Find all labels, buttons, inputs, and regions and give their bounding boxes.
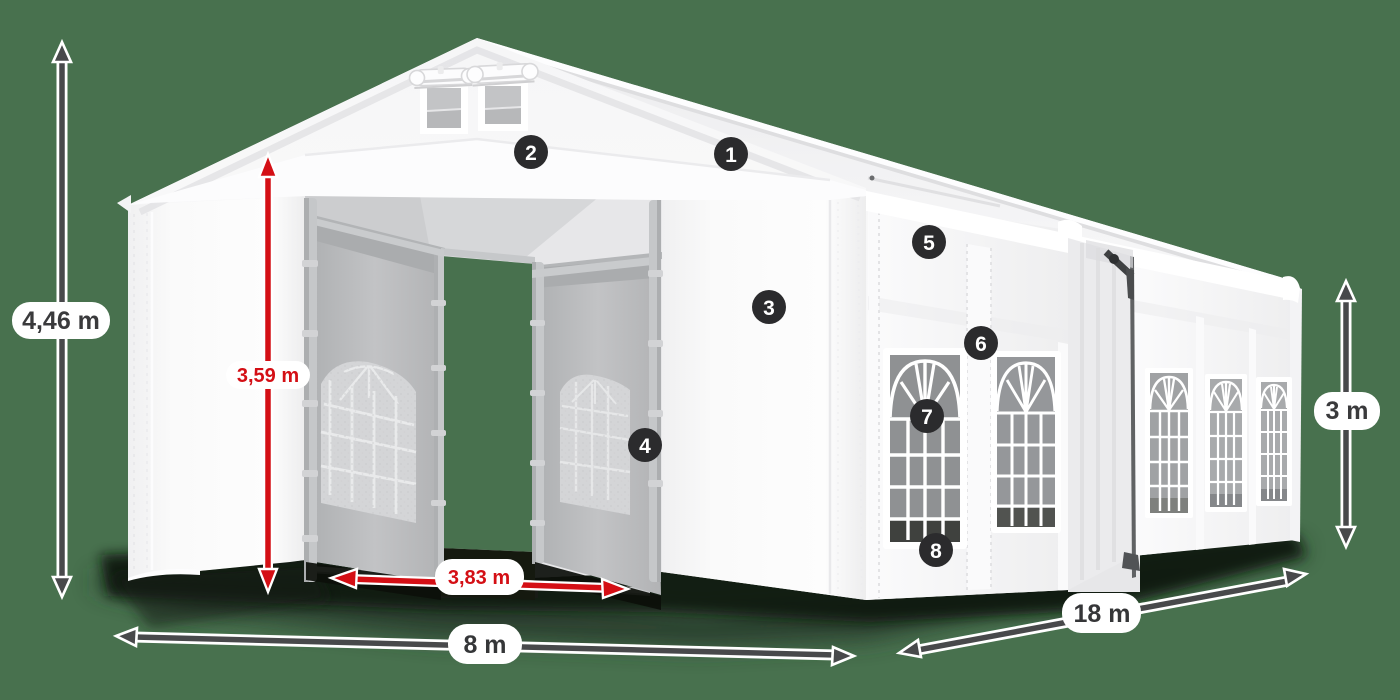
svg-text:7: 7 [921,406,933,429]
svg-text:3,59 m: 3,59 m [237,365,299,387]
svg-text:3 m: 3 m [1325,397,1368,425]
svg-text:4,46 m: 4,46 m [22,307,100,335]
svg-text:6: 6 [975,333,987,356]
svg-text:4: 4 [639,435,651,458]
svg-text:8 m: 8 m [463,631,506,659]
svg-text:5: 5 [923,232,935,255]
svg-text:18 m: 18 m [1074,600,1131,628]
svg-text:3,83 m: 3,83 m [448,567,510,589]
svg-text:2: 2 [525,142,537,165]
svg-text:1: 1 [725,144,737,167]
svg-text:3: 3 [763,297,775,320]
svg-text:8: 8 [930,540,942,563]
